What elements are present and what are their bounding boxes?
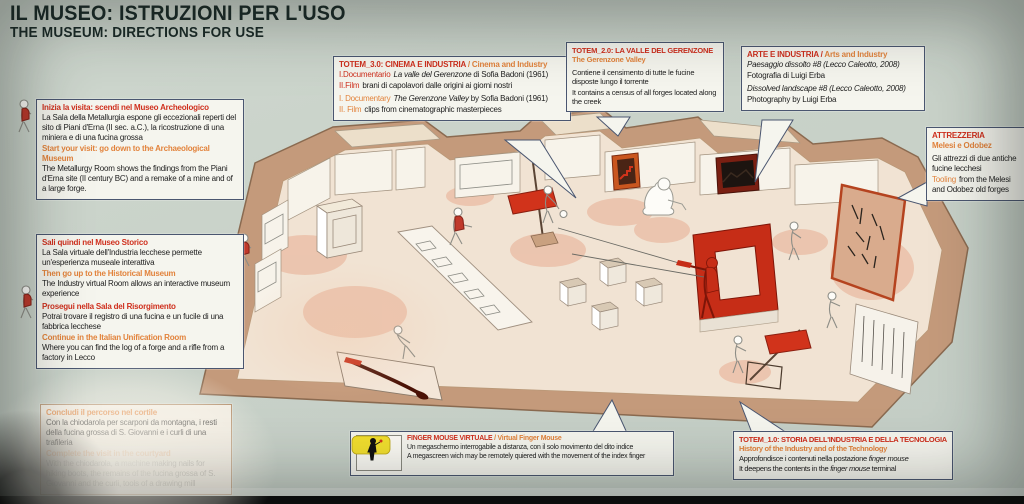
callout-heading: TOTEM_3.0: CINEMA E INDUSTRIA / Cinema a… (339, 60, 565, 70)
callout-heading-it: TOTEM_2.0: LA VALLE DEL GERENZONE (572, 46, 718, 55)
totem3-line2: II.Filmbrani di capolavori dalle origini… (339, 81, 565, 91)
dark-artwork (716, 154, 759, 194)
callout-body-it: La Sala virtuale dell'Industria lecchese… (42, 248, 238, 268)
callout-totem-1: TOTEM_1.0: STORIA DELL'INDUSTRIA E DELLA… (733, 431, 953, 480)
title-italian: IL MUSEO: ISTRUZIONI PER L'USO (10, 3, 346, 25)
callout-body-en: It contains a census of all forges locat… (572, 88, 718, 107)
callout-heading-en: The Gerenzone Valley (572, 55, 718, 64)
finger-mouse-screen-icon (356, 435, 402, 471)
artwork-credit-en: Photography by Luigi Erba (747, 95, 919, 105)
callout-body-it: Contiene il censimento di tutte le fucin… (572, 68, 718, 87)
callout-heading: FINGER MOUSE VIRTUALE / Virtual Finger M… (407, 435, 668, 444)
callout-arts-industry: ARTE E INDUSTRIA / Arts and Industry Pae… (741, 46, 925, 111)
callout-heading-en: Complete the visit in the courtyard (46, 449, 226, 459)
artwork-credit-it: Fotografia di Luigi Erba (747, 71, 919, 81)
visitor-descending-icon (19, 100, 31, 132)
callout-heading-it: Inizia la visita: scendi nel Museo Arche… (42, 103, 238, 113)
totem3-line3: I. DocumentaryThe Gerenzone Valley by So… (339, 94, 565, 104)
callout-subheading: Melesi e Odobez (932, 141, 1020, 151)
callout-body-en: Toolingfrom the Melesi and Odobez old fo… (932, 175, 1020, 195)
panel-edge-highlight (60, 488, 1024, 496)
artwork-title-en: Dissolved landscape #8 (Lecco Caleotto, … (747, 84, 919, 94)
callout-body-en: Where you can find the log of a forge an… (42, 343, 238, 363)
callout-body-en: The Industry virtual Room allows an inte… (42, 279, 238, 299)
callout-attrezzeria: ATTREZZERIA Melesi e Odobez Gli attrezzi… (926, 127, 1024, 201)
callout-heading-it: Sali quindi nel Museo Storico (42, 238, 238, 248)
callout-body-it: La Sala della Metallurgia espone gli ecc… (42, 113, 238, 143)
visitor-walking-icon (21, 286, 33, 318)
callout-totem-2: TOTEM_2.0: LA VALLE DEL GERENZONE The Ge… (566, 42, 724, 112)
museum-info-panel: IL MUSEO: ISTRUZIONI PER L'USO THE MUSEU… (0, 0, 1024, 504)
totem3-line4: II. Filmclips from cinematographic maste… (339, 105, 565, 115)
callout-totem-3: TOTEM_3.0: CINEMA E INDUSTRIA / Cinema a… (333, 56, 571, 121)
callout-heading-en: History of the Industry and of the Techn… (739, 444, 947, 453)
callout-body-en: It deepens the contents in the finger mo… (739, 464, 947, 473)
callout-archaeological-museum: Inizia la visita: scendi nel Museo Arche… (36, 99, 244, 200)
callout-heading-en: Continue in the Italian Unification Room (42, 333, 238, 343)
callout-courtyard: Concludi il percorso nel cortile Con la … (40, 404, 232, 495)
callout-body-it: Gli attrezzi di due antiche fucine lecch… (932, 154, 1020, 174)
callout-heading-it: Concludi il percorso nel cortile (46, 408, 226, 418)
callout-body-it: Potrai trovare il registro di una fucina… (42, 312, 238, 332)
callout-body-en: A megascreen wich may be remotely quiere… (407, 453, 668, 462)
title-english: THE MUSEUM: DIRECTIONS FOR USE (10, 25, 346, 41)
callout-historical-museum: Sali quindi nel Museo Storico La Sala vi… (36, 234, 244, 369)
display-cabinet (317, 199, 362, 258)
totem3-line1: I.DocumentarioLa valle del Gerenzone di … (339, 70, 565, 80)
photo-bottom-edge (0, 496, 1024, 504)
callout-heading-en: Start your visit: go down to the Archaeo… (42, 144, 238, 164)
callout-body-en: The Metallurgy Room shows the findings f… (42, 164, 238, 194)
finger-mouse-text: FINGER MOUSE VIRTUALE / Virtual Finger M… (407, 435, 668, 463)
page-title: IL MUSEO: ISTRUZIONI PER L'USO THE MUSEU… (10, 3, 346, 41)
callout-body-it: Un megaschermo interrogabile a distanza,… (407, 444, 668, 453)
callout-heading: ARTE E INDUSTRIA / Arts and Industry (747, 50, 919, 60)
callout-finger-mouse: FINGER MOUSE VIRTUALE / Virtual Finger M… (350, 431, 674, 476)
callout-body-it: Approfondisce i contenuti nella postazio… (739, 454, 947, 463)
callout-body-en: With the chiodarola, a machine making na… (46, 459, 226, 489)
callout-heading-it: TOTEM_1.0: STORIA DELL'INDUSTRIA E DELLA… (739, 435, 947, 444)
callout-heading: ATTREZZERIA (932, 131, 1020, 141)
callout-heading-it: Prosegui nella Sala del Risorgimento (42, 302, 238, 312)
callout-body-it: Con la chiodarola per scarponi da montag… (46, 418, 226, 448)
artwork-title-it: Paesaggio dissolto #8 (Lecco Caleotto, 2… (747, 60, 919, 70)
red-artwork (612, 153, 640, 190)
callout-heading-en: Then go up to the Historical Museum (42, 269, 238, 279)
